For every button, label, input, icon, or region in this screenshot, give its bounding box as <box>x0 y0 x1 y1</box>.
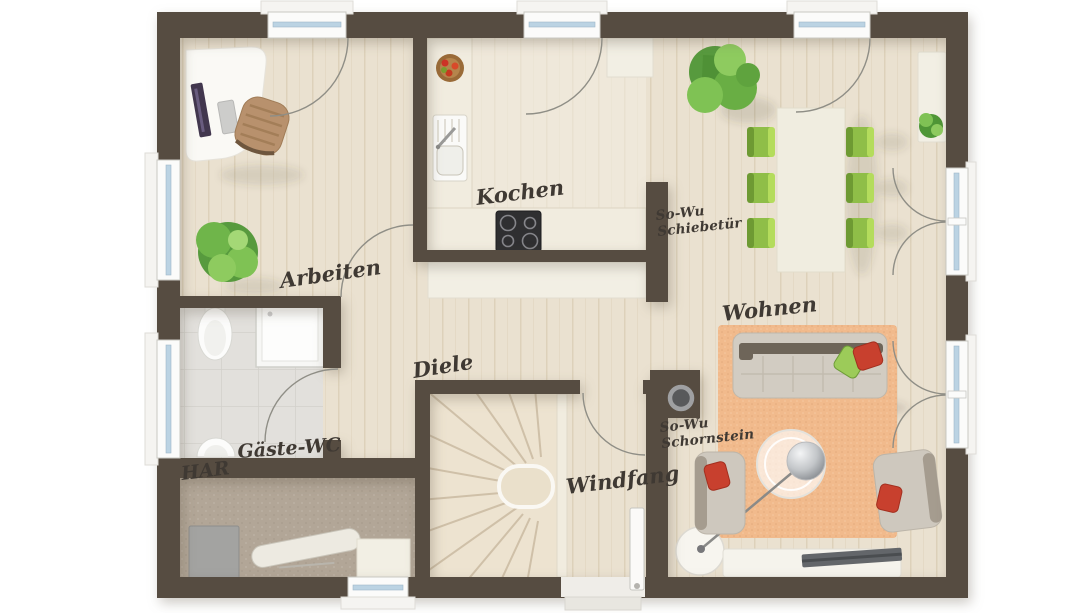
kitchen-tall-cabinet <box>607 38 653 77</box>
sideboard <box>918 52 946 142</box>
window <box>517 1 607 38</box>
floor-plan: Arbeiten Kochen Wohnen Diele Windfang Gä… <box>0 0 1090 613</box>
french-door <box>946 335 976 454</box>
wall-wc-right-upper <box>323 296 341 368</box>
washing-machine <box>189 526 239 579</box>
wall-dining-partition <box>646 182 668 302</box>
dining-chair <box>846 173 874 203</box>
dining-chair <box>747 218 775 248</box>
dining-table <box>777 108 845 272</box>
wall-right <box>946 12 968 598</box>
wall-stairs-left <box>415 380 430 578</box>
window <box>787 1 877 38</box>
sofa <box>733 333 887 398</box>
window <box>261 1 353 38</box>
tv-lowboard <box>723 548 902 577</box>
window <box>145 333 180 465</box>
shower <box>256 300 324 367</box>
dining-chair <box>747 173 775 203</box>
door-hinge <box>634 583 640 589</box>
french-door <box>946 162 976 281</box>
wall-office-wc <box>157 296 341 308</box>
kitchen-sink <box>433 115 467 181</box>
armchair <box>869 448 943 533</box>
floor-plan-svg: Arbeiten Kochen Wohnen Diele Windfang Gä… <box>0 0 1090 613</box>
dining-chair <box>747 127 775 157</box>
dining-chair <box>846 218 874 248</box>
wall-office-kitchen <box>413 38 427 262</box>
dining-chairs-right <box>846 127 874 248</box>
dining-chairs-left <box>747 127 775 248</box>
chimney-flue <box>670 387 692 409</box>
window <box>145 153 180 287</box>
window <box>341 577 415 609</box>
stove-cooktop <box>496 211 541 252</box>
har-cabinet <box>357 539 410 578</box>
stair-handrail <box>499 466 553 507</box>
door-leaf <box>630 508 644 590</box>
wall-stairs-top <box>415 380 580 394</box>
door-mat <box>565 597 641 610</box>
armchair <box>695 452 745 534</box>
fruit-bowl <box>436 54 464 82</box>
wall-kitchen-hall <box>413 250 668 262</box>
dining-chair <box>846 127 874 157</box>
kitchen-island-sideboard <box>428 262 646 298</box>
